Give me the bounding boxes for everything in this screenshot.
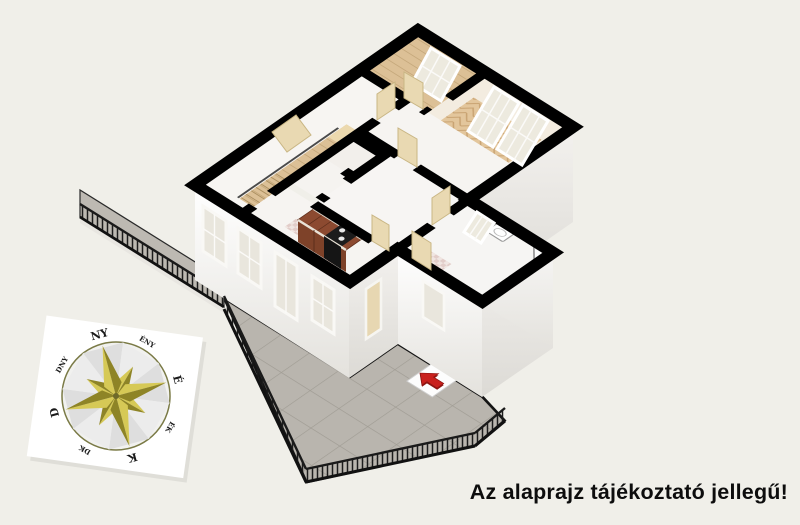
floorplan-scene: É ÉK K DK D DNY NY ÉNY xyxy=(0,0,800,525)
screenshot-root: É ÉK K DK D DNY NY ÉNY Az alaprajz tájék… xyxy=(0,0,800,525)
disclaimer-text: Az alaprajz tájékoztató jellegű! xyxy=(470,480,788,505)
entrance-door xyxy=(366,279,381,339)
compass: É ÉK K DK D DNY NY ÉNY xyxy=(27,310,207,483)
